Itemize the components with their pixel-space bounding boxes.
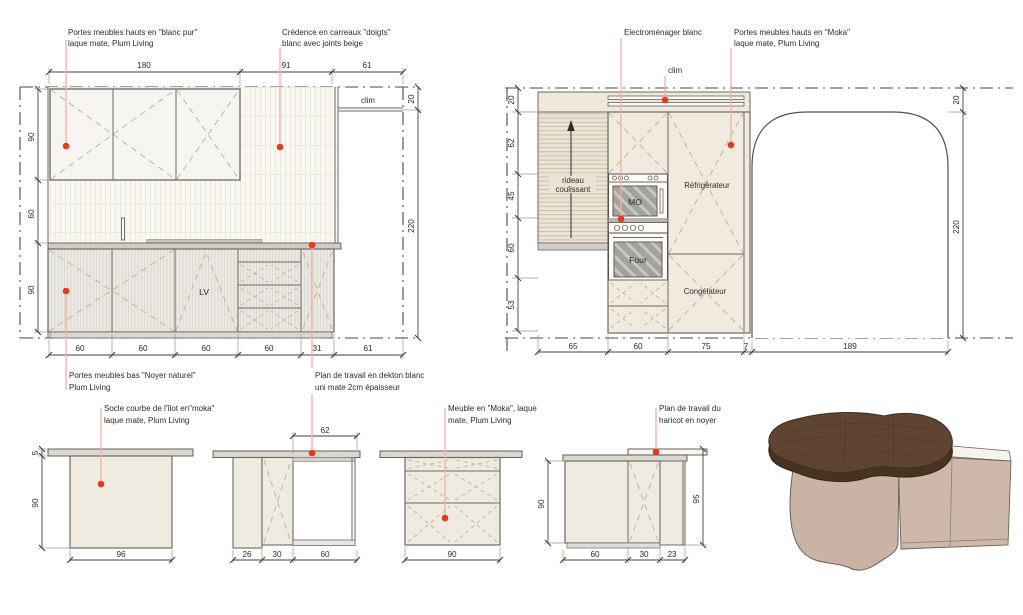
svg-text:65: 65 — [568, 342, 578, 351]
sink-area — [147, 240, 262, 244]
island-worktop — [213, 451, 360, 458]
callout-dot — [309, 450, 316, 457]
svg-text:96: 96 — [116, 550, 126, 559]
rideau-label-1: rideau — [562, 176, 584, 185]
callout-credence-1: Crédence en carreaux "doigts" — [282, 28, 391, 37]
island-base — [70, 456, 172, 548]
callout-dot — [442, 515, 449, 522]
island-elevation-drawers: 90 — [380, 451, 522, 563]
svg-text:60: 60 — [201, 344, 211, 353]
faucet — [122, 218, 125, 240]
svg-text:60: 60 — [138, 344, 148, 353]
arched-opening — [752, 112, 948, 338]
dishwasher-label: LV — [199, 287, 209, 297]
kitchen-drawing-sheet: clim LV 180 91 61 — [0, 0, 1023, 615]
svg-text:90: 90 — [447, 550, 457, 559]
svg-text:60: 60 — [633, 342, 643, 351]
svg-text:220: 220 — [407, 219, 416, 233]
svg-text:20: 20 — [507, 95, 516, 105]
clim-label-right: clim — [668, 66, 683, 75]
callout-dot — [653, 449, 660, 456]
callout-socle-1: Socle courbe de l'îlot en"moka" — [104, 404, 215, 413]
svg-text:61: 61 — [362, 61, 372, 70]
svg-text:7: 7 — [744, 342, 749, 351]
svg-text:60: 60 — [264, 344, 274, 353]
callout-haricot-1: Plan de travail du — [659, 404, 721, 413]
island-worktop — [380, 451, 522, 458]
callout-dekton-1: Plan de travail en dekton blanc — [315, 371, 424, 380]
svg-text:60: 60 — [507, 243, 516, 253]
svg-text:95: 95 — [692, 494, 701, 504]
island-worktop — [563, 455, 687, 461]
oven-label: Four — [629, 255, 647, 265]
svg-text:60: 60 — [27, 209, 36, 219]
rideau-label-2: coulissant — [556, 185, 592, 194]
svg-text:53: 53 — [507, 300, 516, 310]
island-worktop — [48, 449, 193, 456]
drawing-canvas: clim LV 180 91 61 — [0, 0, 1023, 615]
upper-cabinets-white — [50, 89, 240, 180]
svg-text:23: 23 — [667, 550, 677, 559]
vent-slat — [608, 103, 744, 106]
rideau-coulissant: rideau coulissant — [538, 112, 608, 250]
fridge-label: Réfrigérateur — [684, 181, 730, 190]
callout-socle-2: laque mate, Plum Living — [104, 416, 189, 425]
svg-text:180: 180 — [137, 61, 151, 70]
oven: Four — [609, 223, 668, 281]
callout-lower-walnut-2: Plum Living — [69, 383, 110, 392]
callout-appliances: Electroménager blanc — [624, 28, 702, 37]
island-elevation-side-right: 90 95 60 30 23 — [537, 449, 707, 563]
callout-dekton-2: uni mate 2cm épaisseur — [315, 383, 400, 392]
svg-text:75: 75 — [701, 342, 711, 351]
callout-dot — [618, 216, 625, 223]
svg-text:60: 60 — [75, 344, 85, 353]
callout-dot — [662, 97, 669, 104]
svg-text:5: 5 — [31, 450, 40, 455]
svg-text:20: 20 — [407, 94, 416, 104]
svg-text:90: 90 — [537, 499, 546, 509]
callout-dot — [63, 143, 70, 150]
callout-dot — [98, 481, 105, 488]
svg-text:90: 90 — [27, 285, 36, 295]
freezer-label: Congélateur — [684, 287, 727, 296]
left-elevation: clim LV 180 91 61 — [20, 61, 422, 358]
microwave: MO — [609, 174, 668, 222]
vent-slat — [608, 96, 744, 99]
svg-text:20: 20 — [952, 95, 961, 105]
walnut-top — [769, 412, 953, 472]
callout-haricot-2: haricot en noyer — [659, 416, 717, 425]
svg-text:90: 90 — [27, 132, 36, 142]
svg-text:189: 189 — [843, 342, 857, 351]
callout-dot — [63, 288, 70, 295]
svg-text:62: 62 — [320, 426, 330, 435]
callout-meuble-moka-1: Meuble en "Moka", laque — [448, 404, 537, 413]
callout-upper-white-1: Portes meubles hauts en "blanc pur" — [68, 28, 197, 37]
svg-text:60: 60 — [590, 550, 600, 559]
svg-text:220: 220 — [952, 220, 961, 234]
callout-dot — [309, 242, 316, 249]
clim-band — [538, 92, 750, 112]
svg-text:30: 30 — [272, 550, 282, 559]
callout-credence-2: blanc avec joints beige — [282, 39, 363, 48]
plinth — [50, 332, 332, 338]
svg-text:45: 45 — [507, 191, 516, 201]
island-elevation-front: 5 90 96 — [31, 449, 193, 563]
callout-lower-walnut-1: Portes meubles bas "Noyer naturel" — [69, 371, 196, 380]
callout-upper-white-2: laque mate, Plum Living — [68, 39, 153, 48]
island-3d-render — [769, 412, 1011, 570]
right-elevation: rideau coulissant Réfrigérateur Congélat… — [505, 88, 1013, 355]
clim-shelf: clim — [338, 96, 403, 111]
callout-dot — [277, 144, 284, 151]
svg-text:90: 90 — [31, 498, 40, 508]
callout-dot — [728, 142, 735, 149]
callout-upper-moka-1: Portes meubles hauts en "Moka" — [734, 28, 850, 37]
callout-upper-moka-2: laque mate, Plum Living — [734, 39, 819, 48]
base-cabinets-walnut: LV — [48, 249, 334, 338]
svg-text:60: 60 — [320, 550, 330, 559]
svg-text:62: 62 — [507, 138, 516, 148]
svg-text:61: 61 — [363, 344, 373, 353]
svg-text:26: 26 — [242, 550, 252, 559]
svg-text:91: 91 — [281, 61, 291, 70]
svg-text:31: 31 — [312, 344, 322, 353]
island-elevation-side-left: 62 26 30 60 — [213, 426, 360, 563]
microwave-label: MO — [628, 197, 642, 207]
svg-text:30: 30 — [639, 550, 649, 559]
callout-meuble-moka-2: mate, Plum Living — [448, 416, 512, 425]
walnut-worktop — [628, 449, 707, 455]
clim-label-left: clim — [361, 96, 375, 105]
